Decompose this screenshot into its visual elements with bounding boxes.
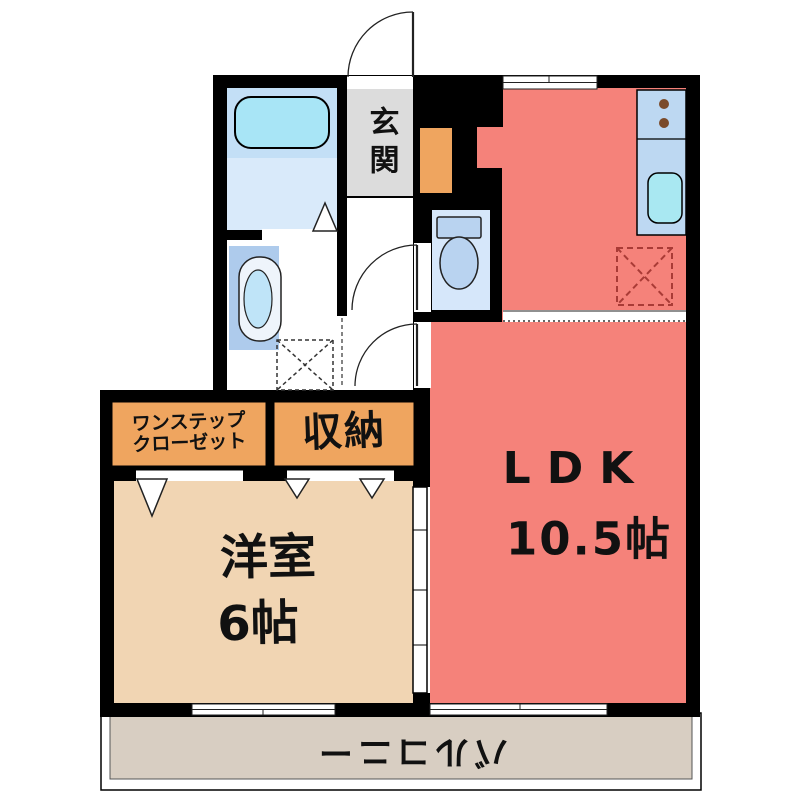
- hallway-floor: [347, 198, 413, 390]
- washroom-sliding-door: [337, 316, 347, 390]
- toilet: [437, 217, 481, 289]
- shoe-cabinet: [419, 127, 453, 194]
- genkan-label: 玄関: [365, 106, 398, 182]
- western-room-floor: [114, 481, 413, 703]
- room-sliding-door: [413, 487, 427, 693]
- one-step-closet-label: ワンステップクローゼット: [131, 410, 246, 456]
- western-room-window: [192, 704, 335, 715]
- storage-label: 収納: [301, 409, 386, 456]
- ldk-label: LDK: [503, 445, 650, 493]
- stove-burners: [659, 99, 669, 109]
- dk-divider: [503, 310, 686, 322]
- western-room-size: 6帖: [217, 597, 299, 651]
- western-room-label: 洋室: [220, 531, 317, 585]
- genkan-step-line: [347, 196, 413, 198]
- floor-plan-drawing: [0, 0, 800, 800]
- stove-burners: [659, 118, 669, 128]
- washbasin: [229, 246, 281, 350]
- bathtub: [235, 97, 329, 148]
- balcony-label: バルコニー: [314, 732, 508, 769]
- ldk-window: [430, 704, 607, 715]
- one-step-closet-line2: クローゼット: [132, 430, 247, 456]
- kitchen-counter: [637, 90, 686, 235]
- kitchen-sink: [648, 173, 682, 223]
- kitchen-window: [503, 76, 597, 89]
- ldk-size: 10.5帖: [506, 514, 672, 564]
- entrance-door: [347, 12, 413, 89]
- floor-plan: 玄関 ワンステップクローゼット 収納 洋室 6帖 LDK 10.5帖 バルコニー: [0, 0, 800, 800]
